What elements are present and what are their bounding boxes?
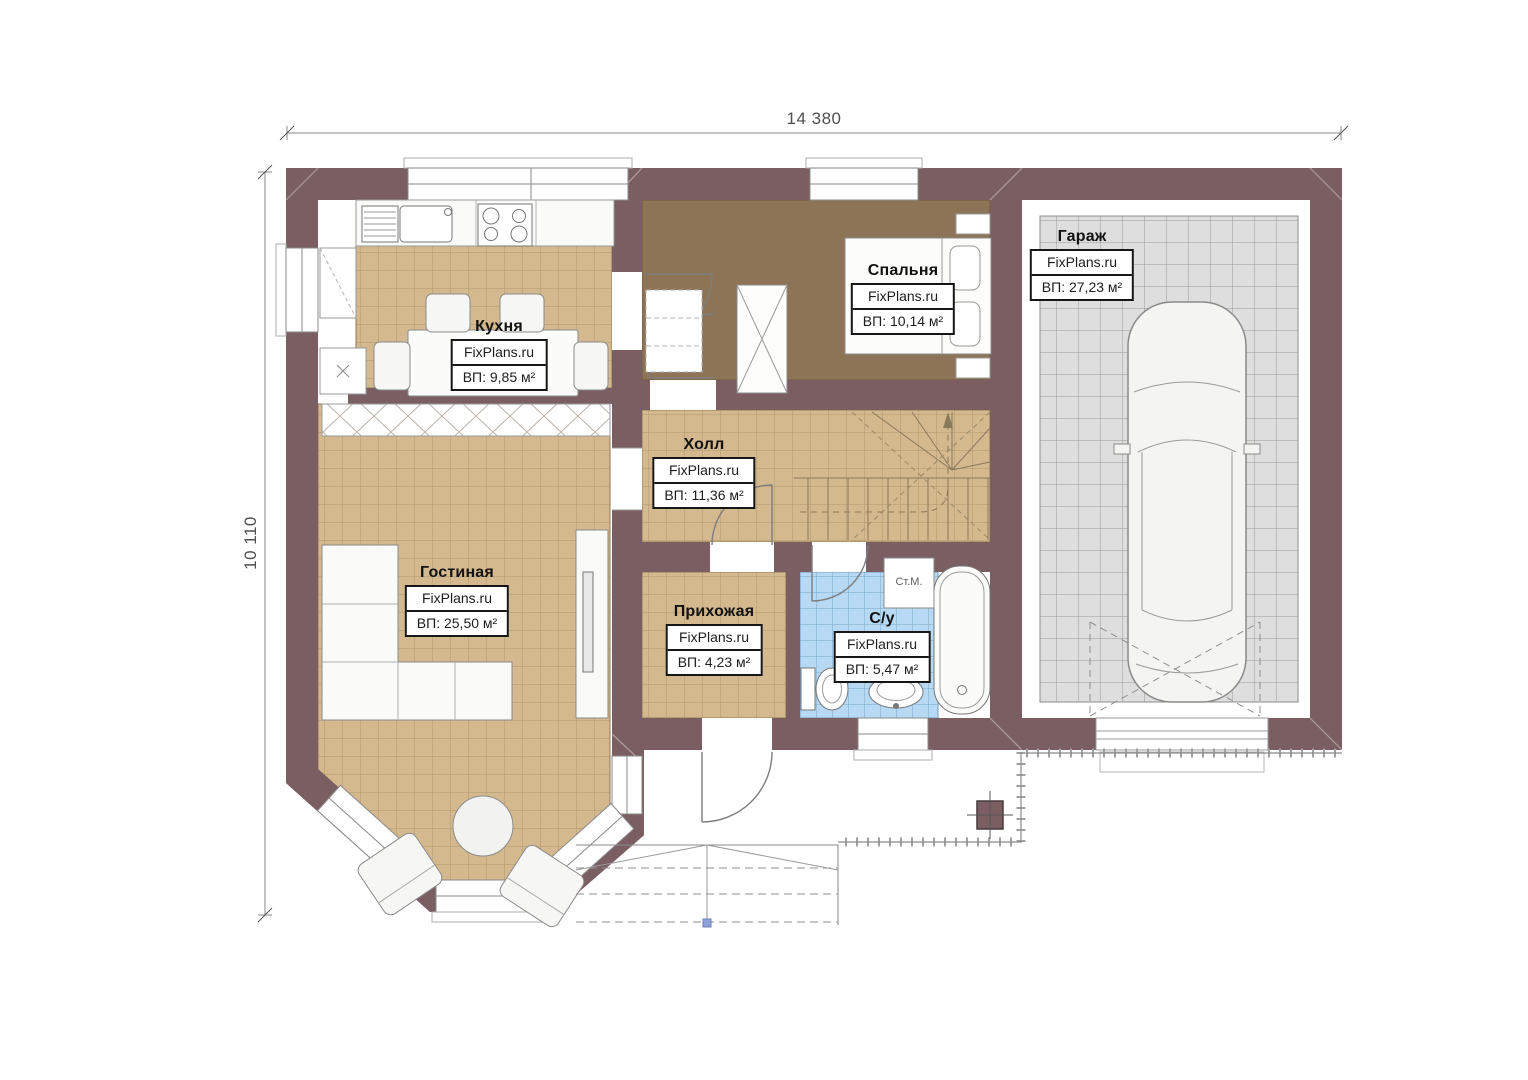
room-label-kitchen: Кухня FixPlans.ru ВП: 9,85 м² — [451, 318, 548, 391]
opening-bathroom-door — [812, 542, 866, 572]
closet-shelves — [646, 290, 702, 372]
kitchen-stove — [478, 204, 532, 246]
window-bedroom-top — [806, 158, 922, 200]
steps-marker — [703, 919, 711, 927]
room-label-hall: Холл FixPlans.ru ВП: 11,36 м² — [652, 436, 755, 509]
kitchen-sideboard-hatched — [322, 404, 610, 436]
room-box-living-room: FixPlans.ru ВП: 25,50 м² — [405, 585, 509, 637]
room-box-bathroom: FixPlans.ru ВП: 5,47 м² — [834, 631, 931, 683]
floor-plan-canvas: 14 380 10 110 Кухня FixPlans.ru ВП: 9,85… — [0, 0, 1528, 1080]
dimension-left-label: 10 110 — [241, 516, 261, 570]
window-bathroom-bottom — [854, 718, 932, 760]
room-watermark: FixPlans.ru — [654, 459, 753, 484]
room-label-garage: Гараж FixPlans.ru ВП: 27,23 м² — [1030, 228, 1134, 301]
room-label-bathroom: С/у FixPlans.ru ВП: 5,47 м² — [834, 610, 931, 683]
room-area: ВП: 4,23 м² — [668, 651, 761, 674]
room-area: ВП: 11,36 м² — [654, 484, 753, 507]
dimension-top-label: 14 380 — [787, 109, 842, 129]
wardrobe — [737, 285, 787, 393]
washing-machine-label: Ст.М. — [895, 576, 922, 588]
kitchen-sink — [362, 206, 452, 242]
kitchen-fridge — [320, 248, 356, 318]
room-area: ВП: 10,14 м² — [853, 310, 953, 333]
room-title-garage: Гараж — [1030, 228, 1134, 246]
window-kitchen-top — [404, 158, 632, 200]
tv-cabinet — [576, 530, 608, 718]
opening-hall-hallway — [710, 542, 774, 572]
floor-plan-drawing — [0, 0, 1528, 1080]
room-box-hall: FixPlans.ru ВП: 11,36 м² — [652, 457, 755, 509]
room-watermark: FixPlans.ru — [453, 341, 546, 366]
room-area: ВП: 27,23 м² — [1032, 276, 1132, 299]
coffee-table — [453, 796, 513, 856]
room-title-living-room: Гостиная — [405, 564, 509, 582]
nightstand-bottom — [956, 358, 990, 378]
room-watermark: FixPlans.ru — [836, 633, 929, 658]
room-box-garage: FixPlans.ru ВП: 27,23 м² — [1030, 249, 1134, 301]
bathtub — [934, 566, 990, 714]
room-title-bedroom: Спальня — [851, 262, 955, 280]
room-box-bedroom: FixPlans.ru ВП: 10,14 м² — [851, 283, 955, 335]
room-title-hallway: Прихожая — [666, 603, 763, 621]
room-label-bedroom: Спальня FixPlans.ru ВП: 10,14 м² — [851, 262, 955, 335]
room-box-kitchen: FixPlans.ru ВП: 9,85 м² — [451, 339, 548, 391]
room-watermark: FixPlans.ru — [1032, 251, 1132, 276]
porch — [576, 752, 1342, 927]
room-watermark: FixPlans.ru — [853, 285, 953, 310]
room-title-kitchen: Кухня — [451, 318, 548, 336]
garage-door — [1096, 718, 1268, 772]
car — [1114, 302, 1260, 702]
window-living-porch — [612, 756, 642, 814]
room-label-living-room: Гостиная FixPlans.ru ВП: 25,50 м² — [405, 564, 509, 637]
room-area: ВП: 25,50 м² — [407, 612, 507, 635]
room-watermark: FixPlans.ru — [407, 587, 507, 612]
opening-front-door — [702, 718, 772, 750]
room-watermark: FixPlans.ru — [668, 626, 761, 651]
room-area: ВП: 5,47 м² — [836, 658, 929, 681]
porch-column — [967, 791, 1013, 839]
kitchen-cabinet — [320, 348, 366, 394]
door-front-entrance — [702, 752, 772, 822]
nightstand-top — [956, 214, 990, 234]
room-title-hall: Холл — [652, 436, 755, 454]
opening-bedroom-door — [650, 380, 716, 410]
window-kitchen-left — [276, 244, 318, 336]
room-title-bathroom: С/у — [834, 610, 931, 628]
room-area: ВП: 9,85 м² — [453, 366, 546, 389]
room-box-hallway: FixPlans.ru ВП: 4,23 м² — [666, 624, 763, 676]
room-label-hallway: Прихожая FixPlans.ru ВП: 4,23 м² — [666, 603, 763, 676]
opening-living-hall — [612, 448, 642, 510]
opening-kitchen-hall — [612, 272, 642, 350]
